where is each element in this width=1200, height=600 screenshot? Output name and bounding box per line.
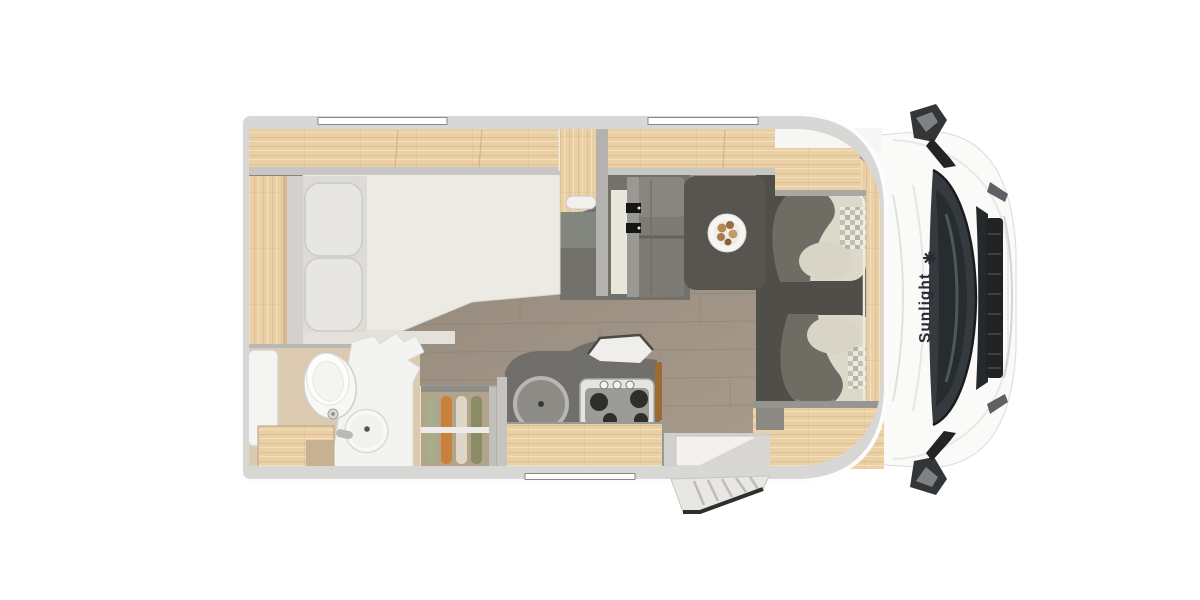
svg-text:Sunlight: Sunlight [917, 273, 934, 343]
